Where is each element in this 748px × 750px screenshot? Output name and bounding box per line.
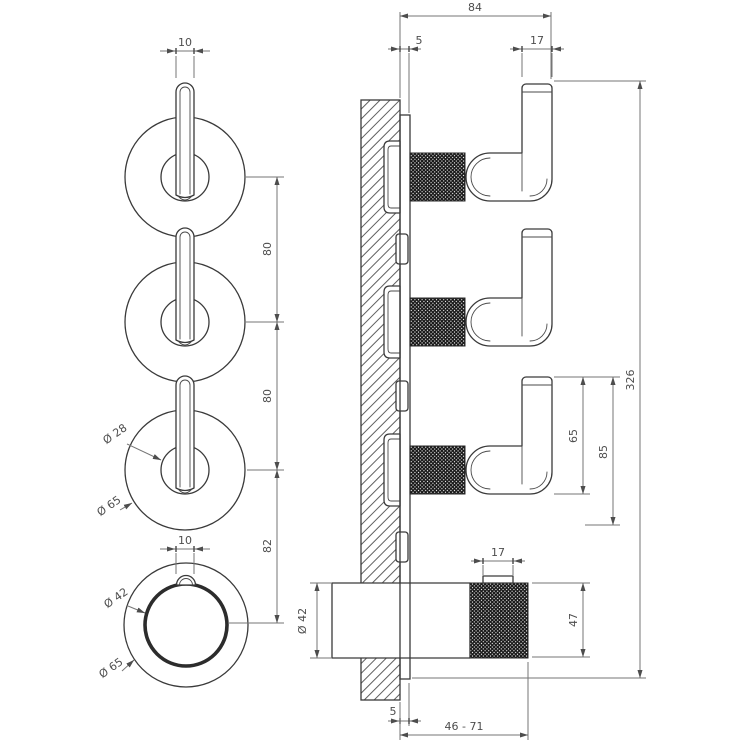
knurled-grip-3 <box>410 446 465 494</box>
dim-front-pitch-mid: 80 <box>261 389 274 403</box>
dim-side-total-height: 326 <box>624 370 637 391</box>
side-lever-3 <box>466 377 552 494</box>
dim-side-total-depth: 84 <box>468 1 482 14</box>
recessed-valve-1 <box>384 141 400 213</box>
front-lever-2 <box>176 228 194 345</box>
plate-fixing-tab-1 <box>396 234 408 264</box>
dim-side-lever-bar-width: 17 <box>530 34 544 47</box>
knurled-grip-1 <box>410 153 465 201</box>
dim-front-pitch-top: 80 <box>261 242 274 256</box>
dim-front-knob-trim-dia: Ø 65 <box>97 655 126 681</box>
dim-side-rough-in-range: 46 - 71 <box>445 720 484 733</box>
side-view: 84 5 17 326 <box>296 1 646 740</box>
dim-side-plate-thickness-bottom: 5 <box>390 705 397 718</box>
dim-side-knob-tab: 17 <box>491 546 505 559</box>
dim-side-lever-height: 65 <box>567 429 580 443</box>
side-lever-1 <box>466 84 552 201</box>
dim-side-lever-span: 85 <box>597 445 610 459</box>
dim-front-inner-dia: Ø 28 <box>101 421 130 447</box>
knurled-knob <box>470 583 528 658</box>
dim-front-trim-dia: Ø 65 <box>95 493 124 519</box>
technical-drawing: 10 80 80 82 Ø 28 Ø 65 10 <box>0 0 748 750</box>
thermostat-body <box>332 583 470 658</box>
plate-fixing-tab-2 <box>396 381 408 411</box>
drawing-svg: 10 80 80 82 Ø 28 Ø 65 10 <box>0 0 748 750</box>
front-lever-3 <box>176 376 194 493</box>
dim-front-lever-width: 10 <box>178 36 192 49</box>
recessed-valve-2 <box>384 286 400 358</box>
recessed-valve-3 <box>384 434 400 506</box>
front-lever-1 <box>176 83 194 200</box>
side-lever-2 <box>466 229 552 346</box>
dim-front-pitch-bottom: 82 <box>261 539 274 553</box>
plate-fixing-tab-3 <box>396 532 408 562</box>
dim-side-body-dia: Ø 42 <box>296 608 309 634</box>
dim-front-knob-tab: 10 <box>178 534 192 547</box>
dim-side-plate-thickness-top: 5 <box>416 34 423 47</box>
knob-tab-side <box>483 576 513 583</box>
knurled-grip-2 <box>410 298 465 346</box>
front-knob <box>124 563 248 687</box>
front-view: 10 80 80 82 Ø 28 Ø 65 10 <box>95 36 284 687</box>
dim-side-knob-height: 47 <box>567 613 580 627</box>
